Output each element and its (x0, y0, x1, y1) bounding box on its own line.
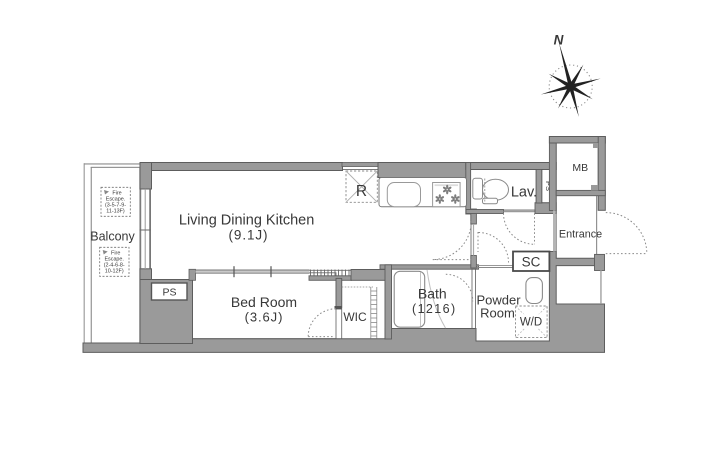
svg-text:PS: PS (162, 286, 176, 298)
svg-text:Lav.: Lav. (511, 185, 537, 201)
svg-text:Entrance: Entrance (559, 228, 602, 240)
svg-text:SC: SC (522, 254, 541, 269)
svg-text:Bath: Bath (418, 285, 447, 301)
svg-text:(9.1J): (9.1J) (229, 228, 269, 243)
svg-text:R: R (356, 183, 367, 200)
svg-text:Balcony: Balcony (90, 230, 135, 244)
svg-text:(3.6J): (3.6J) (245, 310, 284, 325)
svg-text:W/D: W/D (520, 317, 542, 329)
svg-text:N: N (554, 33, 564, 48)
svg-text:Bed Room: Bed Room (231, 294, 297, 310)
svg-text:Room: Room (480, 306, 515, 321)
svg-text:MB: MB (572, 162, 588, 174)
svg-text:WIC: WIC (343, 310, 367, 324)
svg-text:Living Dining Kitchen: Living Dining Kitchen (179, 212, 314, 228)
svg-text:10-12F): 10-12F) (105, 269, 124, 275)
svg-text:11-13F): 11-13F) (106, 209, 125, 215)
svg-text:(1216): (1216) (412, 302, 457, 316)
